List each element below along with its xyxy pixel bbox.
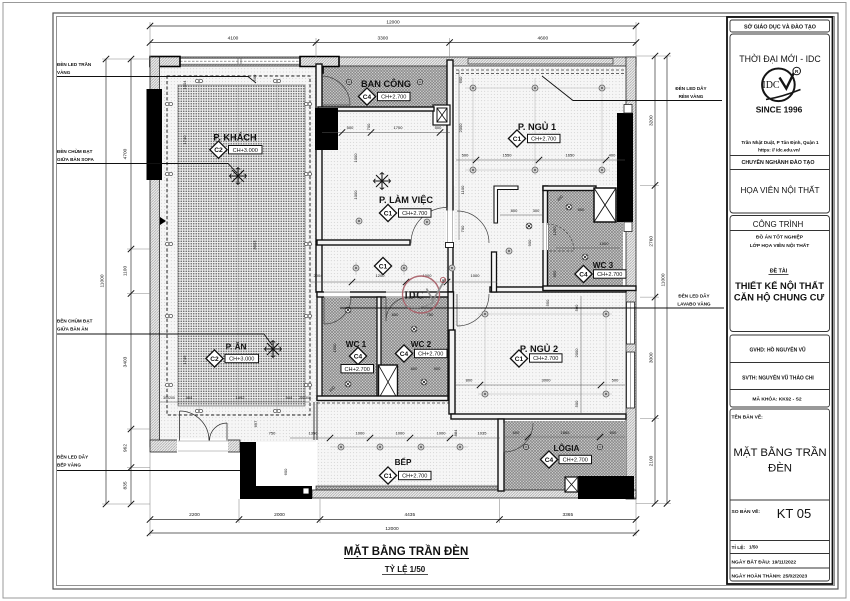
svg-text:MẶT BẰNG TRẦN: MẶT BẰNG TRẦN	[733, 446, 826, 459]
svg-text:CH+2.700: CH+2.700	[597, 272, 622, 278]
svg-text:ĐÈN LED DÂY: ĐÈN LED DÂY	[678, 292, 709, 299]
svg-text:1000: 1000	[353, 153, 358, 163]
svg-text:1000: 1000	[353, 190, 358, 200]
svg-text:600: 600	[458, 76, 463, 83]
svg-text:ĐÈN LED TRẦN: ĐÈN LED TRẦN	[57, 60, 92, 67]
svg-text:CH+2.700: CH+2.700	[563, 458, 588, 464]
svg-text:1350: 1350	[309, 431, 319, 436]
svg-text:SO BẢN VẼ:: SO BẢN VẼ:	[732, 508, 761, 515]
svg-text:HỌA VIÊN NỘI THẤT: HỌA VIÊN NỘI THẤT	[740, 185, 819, 195]
svg-text:12000: 12000	[385, 526, 399, 532]
svg-text:1700: 1700	[394, 125, 404, 130]
svg-text:900: 900	[527, 239, 532, 246]
svg-text:CH+2.700: CH+2.700	[531, 137, 556, 143]
svg-text:C2: C2	[214, 147, 223, 154]
svg-text:THỜI ĐẠI MỚI - IDC: THỜI ĐẠI MỚI - IDC	[739, 54, 821, 64]
svg-text:C4: C4	[545, 457, 554, 464]
svg-text:CĂN HỘ CHUNG CƯ: CĂN HỘ CHUNG CƯ	[734, 292, 825, 303]
svg-text:BẾP VÀNG: BẾP VÀNG	[57, 462, 81, 468]
svg-text:CH+2.700: CH+2.700	[533, 356, 558, 362]
svg-text:1250: 1250	[552, 226, 557, 236]
svg-text:C1: C1	[515, 356, 524, 363]
svg-text:C4: C4	[354, 353, 363, 360]
svg-text:1035: 1035	[478, 431, 488, 436]
svg-text:CH+3.000: CH+3.000	[229, 357, 254, 363]
svg-text:1000: 1000	[356, 431, 366, 436]
svg-text:ĐÈN LED DÂY: ĐÈN LED DÂY	[57, 453, 88, 460]
svg-text:1749: 1749	[182, 355, 187, 365]
svg-text:900: 900	[434, 366, 441, 371]
svg-text:2000: 2000	[274, 512, 285, 518]
svg-text:12000: 12000	[386, 20, 400, 26]
svg-text:C1: C1	[384, 473, 393, 480]
svg-text:750: 750	[269, 431, 276, 436]
svg-text:2000: 2000	[574, 348, 579, 358]
svg-text:835: 835	[123, 481, 129, 489]
svg-text:GIỮA BÀN SOFA: GIỮA BÀN SOFA	[57, 156, 95, 162]
svg-text:CH+2.700: CH+2.700	[402, 474, 427, 480]
svg-text:SINCE 1996: SINCE 1996	[756, 105, 803, 115]
svg-text:1100: 1100	[123, 266, 129, 277]
svg-text:1865: 1865	[561, 430, 571, 435]
svg-text:CH+2.700: CH+2.700	[345, 367, 370, 373]
svg-text:2004: 2004	[314, 273, 324, 278]
svg-text:NGÀY HOÀN THÀNH: 25/02/2023: NGÀY HOÀN THÀNH: 25/02/2023	[732, 573, 808, 580]
svg-text:C2: C2	[210, 356, 219, 363]
svg-text:4600: 4600	[537, 36, 548, 42]
svg-text:C4: C4	[400, 351, 409, 358]
svg-text:400: 400	[609, 153, 616, 158]
svg-text:SỞ GIÁO DỤC VÀ ĐÀO TẠO: SỞ GIÁO DỤC VÀ ĐÀO TẠO	[744, 23, 816, 30]
svg-text:ĐÈN LED DÂY: ĐÈN LED DÂY	[675, 84, 706, 91]
svg-text:600: 600	[411, 366, 418, 371]
svg-text:P. ĂN: P. ĂN	[226, 342, 247, 352]
svg-text:4100: 4100	[228, 36, 239, 42]
svg-text:WC 3: WC 3	[593, 261, 614, 270]
svg-text:WC 1: WC 1	[346, 340, 367, 349]
svg-text:1892: 1892	[236, 395, 246, 400]
svg-text:C1: C1	[513, 136, 522, 143]
svg-text:1000: 1000	[396, 431, 406, 436]
svg-text:544: 544	[286, 395, 293, 400]
svg-text:C4: C4	[363, 94, 372, 101]
svg-text:550: 550	[545, 299, 550, 306]
svg-text:CH+2.700: CH+2.700	[418, 352, 443, 358]
svg-text:500: 500	[612, 378, 619, 383]
svg-text:884: 884	[453, 429, 458, 436]
svg-text:C1: C1	[384, 210, 393, 217]
svg-text:11000: 11000	[100, 274, 106, 287]
svg-text:2200: 2200	[189, 512, 200, 518]
svg-text:4700: 4700	[123, 148, 129, 159]
svg-text:800: 800	[466, 378, 473, 383]
svg-text:600: 600	[513, 430, 520, 435]
svg-text:3000: 3000	[542, 378, 552, 383]
svg-text:300200: 300200	[163, 396, 175, 400]
svg-text:1740: 1740	[182, 135, 187, 145]
svg-text:THIẾT KẾ NỘI THẤT: THIẾT KẾ NỘI THẤT	[735, 280, 824, 291]
svg-text:3300: 3300	[377, 36, 388, 42]
svg-text:500: 500	[574, 400, 579, 407]
svg-text:3365: 3365	[562, 512, 573, 518]
svg-text:1/50: 1/50	[749, 545, 758, 550]
svg-text:464: 464	[186, 395, 193, 400]
svg-text:1100: 1100	[460, 185, 465, 194]
svg-text:850: 850	[552, 270, 557, 277]
svg-text:200300: 200300	[299, 396, 311, 400]
svg-text:ĐÈN CHÙM ĐẠT: ĐÈN CHÙM ĐẠT	[57, 147, 93, 154]
svg-text:600: 600	[610, 430, 617, 435]
svg-text:500: 500	[462, 153, 469, 158]
svg-text:4435: 4435	[404, 512, 415, 518]
svg-text:https: // idc.edu.vn/: https: // idc.edu.vn/	[758, 148, 801, 153]
svg-text:697: 697	[253, 420, 258, 427]
svg-text:8003: 8003	[252, 240, 257, 250]
svg-text:P. KHÁCH: P. KHÁCH	[213, 132, 257, 143]
svg-text:CH+3.000: CH+3.000	[233, 148, 258, 154]
svg-text:1500: 1500	[332, 343, 337, 353]
svg-text:11000: 11000	[661, 273, 667, 286]
svg-text:WC 2: WC 2	[411, 340, 432, 349]
svg-text:1004: 1004	[182, 80, 187, 90]
svg-text:500: 500	[347, 125, 354, 130]
svg-text:CH+2.700: CH+2.700	[381, 95, 406, 101]
svg-text:ĐÈN CHÙM ĐẠT: ĐÈN CHÙM ĐẠT	[57, 317, 93, 324]
svg-text:GVHD: HỒ NGUYỄN VŨ: GVHD: HỒ NGUYỄN VŨ	[749, 347, 806, 354]
svg-text:CHUYÊN NGHÀNH ĐÀO TẠO: CHUYÊN NGHÀNH ĐÀO TẠO	[742, 158, 815, 166]
svg-text:1650: 1650	[566, 153, 576, 158]
svg-text:MẶT BẰNG TRẦN ĐÈN: MẶT BẰNG TRẦN ĐÈN	[344, 545, 469, 558]
svg-text:962: 962	[123, 444, 129, 452]
svg-text:GIỮA BÀN ĂN: GIỮA BÀN ĂN	[57, 326, 89, 332]
svg-text:300: 300	[533, 208, 540, 213]
svg-text:600: 600	[578, 207, 585, 212]
svg-text:CÔNG TRÌNH: CÔNG TRÌNH	[753, 220, 804, 229]
svg-text:650: 650	[392, 312, 399, 317]
svg-text:1000: 1000	[471, 273, 481, 278]
svg-text:1550: 1550	[503, 153, 513, 158]
svg-text:KT 05: KT 05	[777, 506, 811, 521]
svg-text:IDC: IDC	[404, 291, 424, 302]
svg-text:BẾP: BẾP	[395, 457, 412, 467]
svg-text:500: 500	[435, 125, 442, 130]
svg-text:LAVABO VÀNG: LAVABO VÀNG	[677, 301, 711, 307]
svg-text:CH+2.700: CH+2.700	[402, 211, 427, 217]
svg-text:IDC: IDC	[762, 80, 780, 91]
svg-text:2760: 2760	[649, 236, 655, 247]
svg-text:RÈM VÀNG: RÈM VÀNG	[679, 92, 704, 99]
svg-text:P. NGỦ 2: P. NGỦ 2	[520, 343, 558, 354]
svg-text:3403: 3403	[123, 356, 129, 367]
svg-text:750: 750	[427, 312, 434, 317]
svg-text:1000: 1000	[600, 241, 610, 246]
svg-text:700: 700	[366, 123, 371, 130]
svg-text:TỶ LỆ 1/50: TỶ LỆ 1/50	[385, 565, 426, 574]
svg-text:SVTH: NGUYỄN VŨ THẢO CHI: SVTH: NGUYỄN VŨ THẢO CHI	[742, 375, 814, 382]
svg-text:P. LÀM VIỆC: P. LÀM VIỆC	[379, 194, 433, 205]
svg-text:ĐỀ TÀI: ĐỀ TÀI	[770, 268, 788, 275]
svg-text:2000: 2000	[458, 123, 463, 133]
svg-text:2100: 2100	[649, 455, 655, 466]
svg-text:BAN CÔNG: BAN CÔNG	[361, 78, 411, 89]
svg-text:600: 600	[283, 468, 288, 475]
svg-text:C1: C1	[379, 263, 388, 270]
svg-text:LÔGIA: LÔGIA	[554, 442, 580, 453]
svg-text:700: 700	[460, 225, 465, 232]
svg-text:C4: C4	[579, 271, 588, 278]
svg-text:1000: 1000	[437, 431, 447, 436]
svg-text:800: 800	[511, 208, 518, 213]
svg-text:Trần Nhật Duật, P Tân Định, Qu: Trần Nhật Duật, P Tân Định, Quận 1	[741, 140, 819, 145]
svg-text:ĐÈN: ĐÈN	[768, 462, 792, 475]
svg-text:VÀNG: VÀNG	[57, 69, 71, 75]
svg-text:3200: 3200	[649, 115, 655, 126]
svg-text:3000: 3000	[649, 352, 655, 363]
svg-text:P. NGỦ 1: P. NGỦ 1	[518, 121, 556, 132]
